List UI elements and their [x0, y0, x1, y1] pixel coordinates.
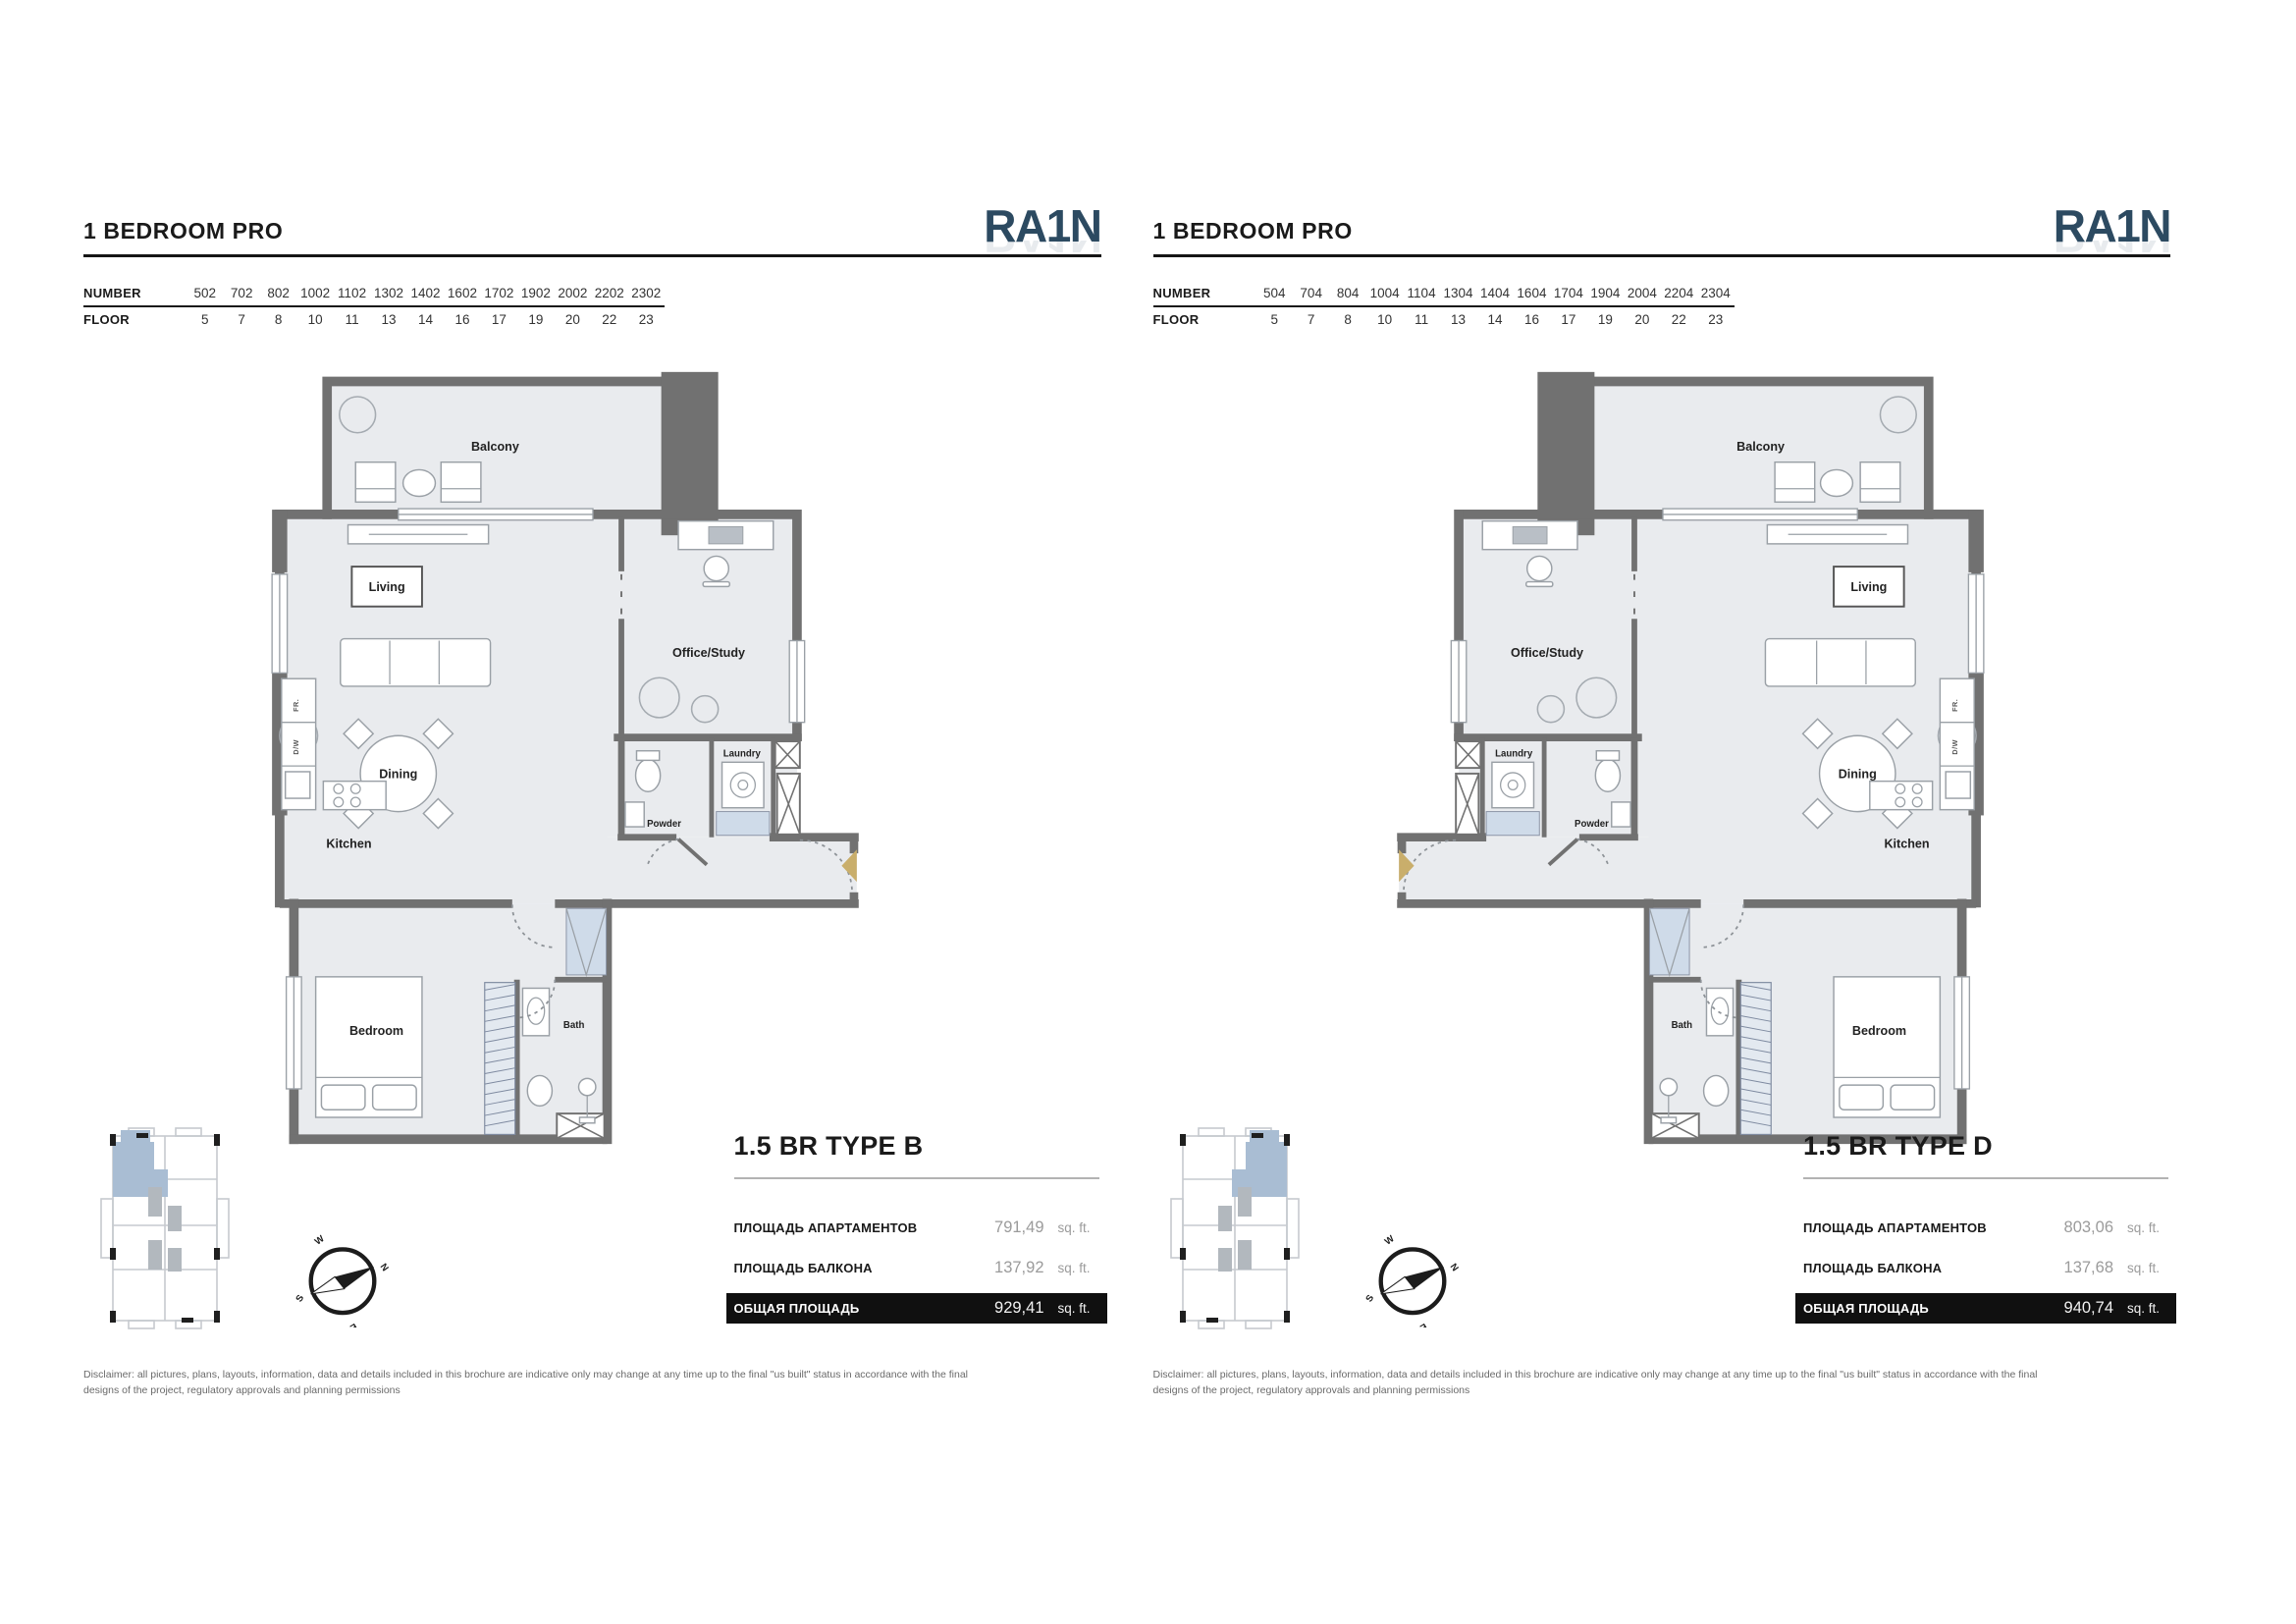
compass-north: N	[1447, 1262, 1459, 1273]
area-value: 137,92	[968, 1259, 1044, 1277]
area-label: ПЛОЩАДЬ АПАРТАМЕНТОВ	[1803, 1220, 2037, 1235]
floor-cell: 23	[1697, 312, 1734, 327]
brand-logo: RA1N	[984, 208, 1100, 244]
header-left: 1 BEDROOM PRO RA1N RA1N	[83, 208, 1101, 257]
floor-label: FLOOR	[83, 312, 187, 327]
compass: W N S E	[1365, 1231, 1460, 1327]
page-left: 1 BEDROOM PRO RA1N RA1N NUMBER 502702802…	[83, 208, 1101, 1398]
bottom-row-left: W N S E 1.5 BR TYPE B ПЛОЩАДЬ АПАРТАМЕНТ…	[83, 1122, 1101, 1333]
floor-cell: 13	[370, 312, 406, 327]
room-label-bedroom: Bedroom	[1851, 1024, 1905, 1038]
unit-number-cell: 1302	[370, 286, 406, 300]
unit-number-cell: 1902	[517, 286, 554, 300]
area-value: 929,41	[968, 1299, 1044, 1318]
key-plan-group: W N S E	[1153, 1122, 1460, 1333]
unit-number-cell: 1404	[1476, 286, 1513, 300]
type-title: 1.5 BR TYPE B	[734, 1131, 1099, 1162]
unit-table: NUMBER 504704804100411041304140416041704…	[1153, 281, 1735, 332]
compass-west: W	[1382, 1233, 1397, 1248]
floor-plan-wrap-left: Balcony Living Office/Study Laundry Powd…	[83, 367, 1101, 1148]
area-unit: sq. ft.	[2113, 1220, 2168, 1235]
compass-south: S	[1365, 1292, 1377, 1304]
area-label: ПЛОЩАДЬ АПАРТАМЕНТОВ	[734, 1220, 968, 1235]
room-label-balcony: Balcony	[471, 440, 519, 454]
room-label-dishwasher: D/W	[1949, 739, 1958, 755]
area-value: 791,49	[968, 1218, 1044, 1237]
area-value: 940,74	[2037, 1299, 2113, 1318]
floor-cell: 5	[187, 312, 223, 327]
type-rule	[734, 1177, 1099, 1179]
brand-logo-reflection: RA1N	[2054, 241, 2170, 254]
type-rule	[1803, 1177, 2168, 1179]
compass-east: E	[1416, 1321, 1428, 1327]
disclaimer-right: Disclaimer: all pictures, plans, layouts…	[1153, 1367, 2042, 1399]
unit-number-cells: 5047048041004110413041404160417041904200…	[1256, 286, 1735, 300]
floor-cell: 11	[334, 312, 370, 327]
page-title: 1 BEDROOM PRO	[1153, 218, 1353, 244]
unit-number-row: NUMBER 504704804100411041304140416041704…	[1153, 281, 1735, 305]
floor-cell: 10	[1366, 312, 1403, 327]
compass-east: E	[347, 1321, 359, 1327]
disclaimer-left: Disclaimer: all pictures, plans, layouts…	[83, 1367, 972, 1399]
area-unit: sq. ft.	[1044, 1220, 1099, 1235]
room-label-bath: Bath	[1671, 1020, 1692, 1031]
floor-cell: 13	[1440, 312, 1476, 327]
area-unit: sq. ft.	[2113, 1301, 2168, 1316]
area-row: ПЛОЩАДЬ БАЛКОНА 137,68 sq. ft.	[1795, 1253, 2176, 1283]
floor-cell: 11	[1403, 312, 1439, 327]
area-label: ОБЩАЯ ПЛОЩАДЬ	[1803, 1301, 2037, 1316]
floor-cell: 10	[296, 312, 333, 327]
floor-row: FLOOR 57810111314161719202223	[1153, 307, 1735, 332]
unit-number-cell: 2304	[1697, 286, 1734, 300]
floor-cell: 20	[1624, 312, 1660, 327]
unit-number-cell: 1004	[1366, 286, 1403, 300]
area-row: ПЛОЩАДЬ БАЛКОНА 137,92 sq. ft.	[726, 1253, 1107, 1283]
floor-plan-type-b: Balcony Living Office/Study Laundry Powd…	[270, 367, 859, 1146]
area-unit: sq. ft.	[1044, 1301, 1099, 1316]
room-label-bedroom: Bedroom	[349, 1024, 403, 1038]
unit-table: NUMBER 502702802100211021302140216021702…	[83, 281, 665, 332]
room-label-living: Living	[369, 580, 405, 594]
floor-plan-type-d: Balcony Living Office/Study Laundry Powd…	[1397, 367, 1986, 1146]
compass-south: S	[295, 1292, 307, 1304]
unit-number-cell: 1304	[1440, 286, 1476, 300]
room-label-office: Office/Study	[1511, 646, 1583, 660]
floor-cell: 5	[1256, 312, 1293, 327]
room-label-laundry: Laundry	[723, 748, 762, 759]
room-label-kitchen: Kitchen	[326, 837, 371, 850]
type-panel-left: 1.5 BR TYPE B ПЛОЩАДЬ АПАРТАМЕНТОВ 791,4…	[734, 1131, 1099, 1333]
unit-number-cell: 2302	[628, 286, 665, 300]
unit-number-cell: 1102	[334, 286, 370, 300]
unit-number-cells: 5027028021002110213021402160217021902200…	[187, 286, 665, 300]
unit-number-cell: 2204	[1661, 286, 1697, 300]
unit-number-cell: 2002	[555, 286, 591, 300]
floor-cell: 8	[1329, 312, 1365, 327]
key-plan	[91, 1122, 239, 1333]
unit-number-cell: 1702	[481, 286, 517, 300]
key-plan-highlighted-unit	[113, 1130, 168, 1197]
unit-number-cell: 704	[1293, 286, 1329, 300]
number-label: NUMBER	[1153, 286, 1256, 300]
header-right: 1 BEDROOM PRO RA1N RA1N	[1153, 208, 2171, 257]
room-label-dishwasher: D/W	[292, 739, 300, 755]
area-value: 803,06	[2037, 1218, 2113, 1237]
key-plan	[1161, 1122, 1308, 1333]
unit-number-cell: 702	[223, 286, 259, 300]
unit-number-cell: 1402	[407, 286, 444, 300]
area-label: ПЛОЩАДЬ БАЛКОНА	[1803, 1261, 2037, 1275]
page-title: 1 BEDROOM PRO	[83, 218, 283, 244]
floor-cell: 17	[1550, 312, 1586, 327]
room-label-fridge: FR.	[1949, 699, 1958, 712]
unit-number-row: NUMBER 502702802100211021302140216021702…	[83, 281, 665, 305]
room-label-balcony: Balcony	[1736, 440, 1785, 454]
brand-logo-reflection: RA1N	[984, 241, 1100, 254]
unit-number-cell: 2202	[591, 286, 627, 300]
brochure-sheet: 1 BEDROOM PRO RA1N RA1N NUMBER 502702802…	[0, 0, 2296, 1398]
unit-number-cell: 802	[260, 286, 296, 300]
area-label: ПЛОЩАДЬ БАЛКОНА	[734, 1261, 968, 1275]
key-plan-group: W N S E	[83, 1122, 390, 1333]
brand-logo-wrap: RA1N RA1N	[984, 208, 1100, 244]
page-right: 1 BEDROOM PRO RA1N RA1N NUMBER 504704804…	[1153, 208, 2171, 1398]
area-list: ПЛОЩАДЬ АПАРТАМЕНТОВ 791,49 sq. ft. ПЛОЩ…	[734, 1213, 1099, 1324]
floor-plan-wrap-right: Balcony Living Office/Study Laundry Powd…	[1153, 367, 2171, 1148]
room-label-office: Office/Study	[672, 646, 745, 660]
room-label-kitchen: Kitchen	[1884, 837, 1929, 850]
area-label: ОБЩАЯ ПЛОЩАДЬ	[734, 1301, 968, 1316]
room-label-bath: Bath	[563, 1020, 585, 1031]
floor-cell: 7	[1293, 312, 1329, 327]
brand-logo: RA1N	[2054, 208, 2170, 244]
floor-row: FLOOR 57810111314161719202223	[83, 307, 665, 332]
floor-cell: 14	[407, 312, 444, 327]
area-row: ОБЩАЯ ПЛОЩАДЬ 929,41 sq. ft.	[726, 1293, 1107, 1324]
floor-cell: 8	[260, 312, 296, 327]
floor-cell: 14	[1476, 312, 1513, 327]
room-label-living: Living	[1850, 580, 1887, 594]
floor-cell: 22	[591, 312, 627, 327]
area-row: ПЛОЩАДЬ АПАРТАМЕНТОВ 803,06 sq. ft.	[1795, 1213, 2176, 1243]
unit-number-cell: 1602	[444, 286, 480, 300]
room-label-laundry: Laundry	[1495, 748, 1533, 759]
floor-cells: 57810111314161719202223	[187, 312, 665, 327]
room-label-powder: Powder	[1575, 819, 1609, 830]
floor-cells: 57810111314161719202223	[1256, 312, 1735, 327]
unit-number-cell: 804	[1329, 286, 1365, 300]
area-unit: sq. ft.	[1044, 1261, 1099, 1275]
floor-label: FLOOR	[1153, 312, 1256, 327]
type-title: 1.5 BR TYPE D	[1803, 1131, 2168, 1162]
unit-number-cell: 1104	[1403, 286, 1439, 300]
floor-cell: 16	[444, 312, 480, 327]
compass: W N S E	[295, 1231, 390, 1327]
floor-cell: 19	[1587, 312, 1624, 327]
room-label-dining: Dining	[1838, 768, 1876, 782]
area-list: ПЛОЩАДЬ АПАРТАМЕНТОВ 803,06 sq. ft. ПЛОЩ…	[1803, 1213, 2168, 1324]
floor-cell: 7	[223, 312, 259, 327]
floor-cell: 20	[555, 312, 591, 327]
compass-north: N	[378, 1262, 390, 1273]
area-unit: sq. ft.	[2113, 1261, 2168, 1275]
unit-number-cell: 1704	[1550, 286, 1586, 300]
area-value: 137,68	[2037, 1259, 2113, 1277]
number-label: NUMBER	[83, 286, 187, 300]
floor-cell: 19	[517, 312, 554, 327]
unit-number-cell: 1604	[1514, 286, 1550, 300]
bottom-row-right: W N S E 1.5 BR TYPE D ПЛОЩАДЬ АПАРТАМЕНТ…	[1153, 1122, 2171, 1333]
brand-logo-wrap: RA1N RA1N	[2054, 208, 2170, 244]
area-row: ОБЩАЯ ПЛОЩАДЬ 940,74 sq. ft.	[1795, 1293, 2176, 1324]
floor-cell: 22	[1661, 312, 1697, 327]
area-row: ПЛОЩАДЬ АПАРТАМЕНТОВ 791,49 sq. ft.	[726, 1213, 1107, 1243]
room-label-fridge: FR.	[292, 699, 300, 712]
floor-cell: 23	[628, 312, 665, 327]
compass-west: W	[313, 1233, 328, 1248]
floor-cell: 17	[481, 312, 517, 327]
room-label-powder: Powder	[647, 819, 681, 830]
floor-cell: 16	[1514, 312, 1550, 327]
unit-number-cell: 502	[187, 286, 223, 300]
unit-number-cell: 504	[1256, 286, 1293, 300]
unit-number-cell: 2004	[1624, 286, 1660, 300]
room-label-dining: Dining	[379, 768, 417, 782]
unit-number-cell: 1002	[296, 286, 333, 300]
unit-number-cell: 1904	[1587, 286, 1624, 300]
type-panel-right: 1.5 BR TYPE D ПЛОЩАДЬ АПАРТАМЕНТОВ 803,0…	[1803, 1131, 2168, 1333]
